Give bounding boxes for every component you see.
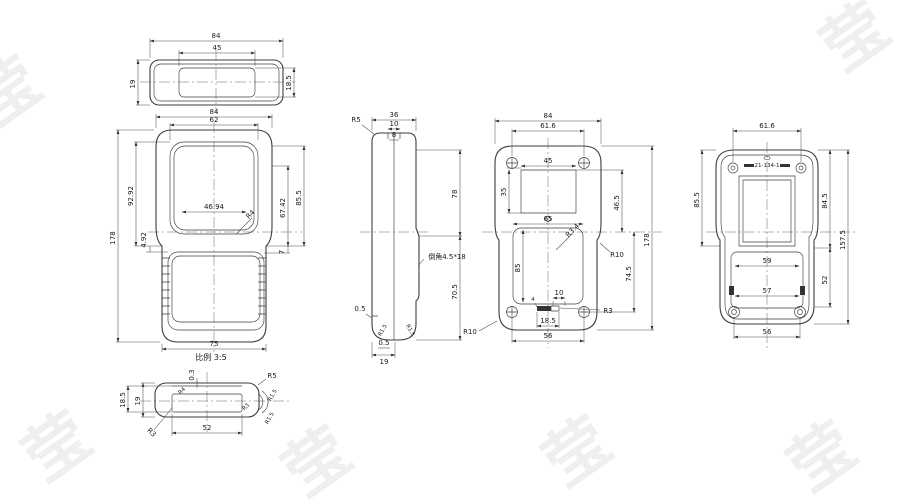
dim-label: 57 (763, 287, 772, 295)
side-view-outline (372, 133, 419, 340)
dim-label: 85 (514, 264, 522, 273)
dim-label: 52 (203, 424, 212, 432)
dim-label: 85.5 (693, 192, 701, 208)
clip (800, 286, 805, 295)
right-view-centerlines (706, 142, 858, 348)
top-view-recess (179, 68, 255, 97)
dim-label: 0.5 (354, 305, 365, 313)
clip (729, 286, 734, 295)
dim-label: 84.5 (821, 193, 829, 209)
front-view: 84 62 46.94 178 92.92 4.92 67.42 85.5 7 … (109, 108, 306, 352)
dim-label: 61.6 (759, 122, 775, 130)
detail-extension-lines (126, 378, 242, 436)
back-view: 84 61.6 45 35 65 R3.4 85 46.5 74.5 178 R… (463, 112, 662, 348)
watermark-glyph: 莹 (270, 413, 365, 500)
radius-label: R1.5 (267, 388, 279, 402)
dim-label: 46.94 (204, 203, 225, 211)
lower-opening-inner (172, 256, 260, 322)
cad-drawing-sheet: 莹 莹 莹 莹 莹 莹 84 45 19 18.5 (0, 0, 900, 500)
lower-opening-outer (168, 252, 264, 330)
radius-label: R1.5 (377, 323, 389, 337)
dim-label: 19 (380, 358, 389, 366)
dim-label: 4 (531, 297, 535, 303)
watermark-glyph: 莹 (10, 398, 105, 496)
radius-label: R5 (351, 116, 360, 124)
bottom-slot (537, 306, 551, 311)
vent-slot (744, 164, 754, 167)
dim-label: 178 (643, 233, 651, 246)
dim-label: 18.5 (540, 317, 556, 325)
dim-label: 0.5 (378, 339, 389, 347)
dim-label: 84 (210, 108, 219, 116)
dim-label: 65 (544, 215, 553, 223)
vent-slot (780, 164, 790, 167)
dim-label: 18.5 (285, 75, 293, 91)
dim-label: 74.5 (625, 266, 633, 282)
dim-label: 56 (544, 332, 553, 340)
watermark-glyph: 莹 (530, 403, 625, 500)
watermark-layer: 莹 莹 莹 莹 莹 莹 (0, 0, 900, 500)
dim-label: 45 (544, 157, 553, 165)
dim-label: 0.3 (188, 369, 196, 380)
dim-label: 61.6 (540, 122, 556, 130)
dim-label: 59 (763, 257, 772, 265)
leader-line (366, 314, 372, 318)
side-view-parting-line (372, 133, 400, 340)
scale-note: 比例 3:5 (195, 352, 226, 362)
dim-label: 52 (821, 276, 829, 285)
radius-label: R10 (463, 328, 477, 336)
dim-label: 85.5 (295, 190, 303, 206)
leader-lines (154, 379, 266, 430)
part-number: 21-134-1 (755, 163, 780, 169)
dim-label: 78 (451, 190, 459, 199)
dim-label: 84 (544, 112, 553, 120)
front-view-centerlines (148, 122, 302, 352)
radius-label: R1.5 (404, 324, 416, 338)
top-view: 84 45 19 18.5 (129, 32, 296, 112)
watermark-glyph: 莹 (0, 43, 55, 141)
display-window (521, 170, 576, 213)
bottom-slot-open (551, 306, 559, 311)
dim-label: 75 (210, 340, 219, 348)
watermark-glyph: 莹 (775, 408, 870, 500)
dim-label: 45 (213, 44, 222, 52)
top-view-centerlines (140, 50, 295, 112)
dim-label: 10 (390, 120, 399, 128)
dim-label: 18.5 (119, 392, 127, 408)
radius-label: R5 (267, 372, 276, 380)
dim-label: 19 (129, 80, 137, 89)
grip-ribs (162, 258, 266, 314)
dim-label: 157.5 (839, 230, 847, 250)
radius-label: R4 (178, 386, 188, 396)
dim-label: 35 (500, 188, 508, 197)
radius-label: R1.5 (264, 411, 276, 425)
top-view-outline (150, 60, 283, 105)
dim-label: 67.42 (279, 198, 287, 218)
drawing-canvas: 莹 莹 莹 莹 莹 莹 84 45 19 18.5 (0, 0, 900, 500)
dim-label: 56 (763, 328, 772, 336)
radius-label: R3 (603, 307, 612, 315)
side-view: 36 10 8 R5 倒角4.5*18 78 70.5 0.5 R1.5 R1.… (351, 111, 465, 366)
dim-label: 10 (555, 289, 564, 297)
radius-label: R3 (242, 402, 252, 412)
dim-label: 4.92 (140, 232, 148, 248)
dim-label: 62 (210, 116, 219, 124)
dim-label: 8 (392, 131, 396, 139)
dim-label: 70.5 (451, 284, 459, 300)
dim-label: 84 (212, 32, 221, 40)
radius-label: R10 (610, 251, 624, 259)
watermark-glyph: 莹 (808, 0, 900, 86)
radius-label: R3.4 (564, 222, 581, 239)
dim-label: 19 (134, 397, 142, 406)
chamfer-note: 倒角4.5*18 (428, 252, 466, 261)
dim-label: 7 (278, 250, 286, 254)
side-view-extension-lines (372, 117, 462, 358)
detail-view: 0.3 19 18.5 52 R5 R1.5 R1.5 R3 R4 R3 (119, 369, 292, 438)
dim-label: 178 (109, 231, 117, 244)
top-view-inner-wall (154, 64, 279, 101)
dim-label: 92.92 (127, 186, 135, 206)
dim-label: 46.5 (613, 195, 621, 211)
right-view: 21-134-1 61.6 85.5 84.5 52 157.5 59 57 5… (693, 122, 858, 348)
radius-label: R4 (244, 208, 257, 221)
dim-label: 36 (390, 111, 399, 119)
